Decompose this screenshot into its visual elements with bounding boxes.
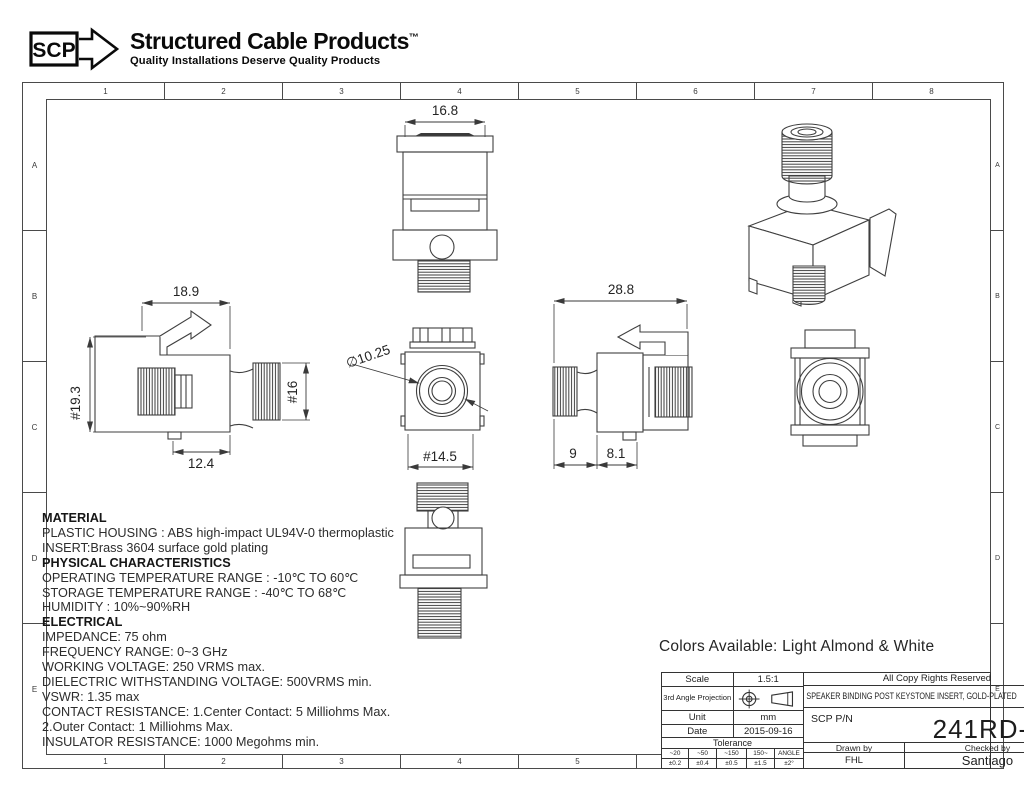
spec-line: DIELECTRIC WITHSTANDING VOLTAGE: 500VRMS… — [42, 675, 412, 690]
dim-face-width: #14.5 — [423, 449, 457, 464]
dim-barrel-len: 9 — [569, 446, 577, 461]
grid-col-label: 5 — [518, 755, 636, 768]
spec-line: HUMIDITY : 10%~90%RH — [42, 600, 412, 615]
grid-col-label: 4 — [400, 83, 518, 99]
grid-row-label: B — [23, 230, 46, 361]
date-value: 2015-09-16 — [733, 725, 804, 737]
product-title: SPEAKER BINDING POST KEYSTONE INSERT, GO… — [804, 691, 1017, 701]
tolerance-value: ±0.2 — [662, 759, 688, 768]
grid-col-label: 8 — [872, 83, 990, 99]
tolerance-range: 150~ — [746, 749, 774, 758]
spec-text-block: MATERIAL PLASTIC HOUSING : ABS high-impa… — [42, 511, 412, 750]
tolerance-value: ±2° — [774, 759, 803, 768]
scp-logo-mark: SCP — [28, 24, 122, 74]
logo-name: Structured Cable Products — [130, 28, 409, 54]
date-label: Date — [662, 725, 733, 737]
spec-line: OPERATING TEMPERATURE RANGE : -10℃ TO 60… — [42, 571, 412, 586]
scp-abbr: SCP — [32, 39, 75, 62]
grid-col-label: 4 — [400, 755, 518, 768]
grid-col-label: 1 — [47, 83, 164, 99]
grid-col-label: 2 — [164, 755, 282, 768]
scp-logo: SCP Structured Cable Products™ Quality I… — [28, 24, 418, 74]
spec-line: PHYSICAL CHARACTERISTICS — [42, 556, 412, 571]
view-isometric — [735, 118, 910, 308]
drawing-sheet: SCP Structured Cable Products™ Quality I… — [0, 0, 1024, 791]
checked-by-value: Santiago — [904, 753, 1024, 768]
grid-col-label: 1 — [47, 755, 164, 768]
drawn-by-value: FHL — [804, 753, 904, 768]
grid-row-label: B — [991, 230, 1004, 361]
title-block-left: Scale 1.5:1 3rd Angle Projection — [662, 673, 804, 768]
scale-label: Scale — [662, 673, 733, 686]
grid-col-label: 7 — [754, 83, 872, 99]
copyright-notice: All Copy Rights Reserved — [804, 673, 1024, 686]
spec-line: STORAGE TEMPERATURE RANGE : -40℃ TO 68℃ — [42, 586, 412, 601]
tolerance-range: ~50 — [688, 749, 716, 758]
unit-label: Unit — [662, 711, 733, 724]
view-side-left: 18.9 #19.3 #16 12.4 — [50, 285, 315, 480]
view-side-right: 28.8 9 8.1 — [545, 280, 720, 480]
title-block: Scale 1.5:1 3rd Angle Projection — [661, 672, 991, 769]
view-rear — [775, 318, 895, 448]
spec-line: WORKING VOLTAGE: 250 VRMS max. — [42, 660, 412, 675]
logo-trademark-symbol: ™ — [409, 33, 419, 44]
tolerance-value: ±0.4 — [688, 759, 716, 768]
spec-line: INSULATOR RESISTANCE: 1000 Megohms min. — [42, 735, 412, 750]
part-number-label: SCP P/N — [811, 713, 853, 725]
view-top: 16.8 — [385, 100, 510, 295]
drawn-by-label: Drawn by — [804, 743, 904, 752]
unit-value: mm — [733, 711, 804, 724]
tolerance-range: ~150 — [716, 749, 746, 758]
grid-row-label: C — [991, 361, 1004, 492]
tolerance-value: ±0.5 — [716, 759, 746, 768]
scale-value: 1.5:1 — [733, 673, 804, 686]
spec-line: CONTACT RESISTANCE: 1.Center Contact: 5 … — [42, 705, 412, 720]
dim-barrel-dia: #16 — [285, 381, 300, 404]
spec-line: PLASTIC HOUSING : ABS high-impact UL94V-… — [42, 526, 412, 541]
spec-line: VSWR: 1.35 max — [42, 690, 412, 705]
spec-line: IMPEDANCE: 75 ohm — [42, 630, 412, 645]
tolerance-value: ±1.5 — [746, 759, 774, 768]
dim-overall-depth: 28.8 — [608, 282, 634, 297]
logo-text: Structured Cable Products™ Quality Insta… — [130, 30, 418, 67]
grid-col-label: 2 — [164, 83, 282, 99]
dim-rear-len: 8.1 — [607, 446, 626, 461]
grid-ruler-top: 1 2 3 4 5 6 7 8 — [47, 83, 990, 99]
colors-available-note: Colors Available: Light Almond & White — [659, 638, 934, 656]
projection-label: 3rd Angle Projection — [662, 687, 733, 710]
grid-col-label: 5 — [518, 83, 636, 99]
grid-col-label: 3 — [282, 755, 400, 768]
dim-top-width: 16.8 — [432, 103, 458, 118]
spec-line: ELECTRICAL — [42, 615, 412, 630]
spec-line: MATERIAL — [42, 511, 412, 526]
view-front: ∅10.25 #14.5 — [340, 320, 515, 475]
spec-line: 2.Outer Contact: 1 Milliohms Max. — [42, 720, 412, 735]
scp-box-arrow-icon: SCP — [28, 24, 122, 74]
logo-tagline: Quality Installations Deserve Quality Pr… — [130, 56, 418, 67]
tolerance-range: ANGLE — [774, 749, 803, 758]
grid-col-label: 6 — [636, 83, 754, 99]
title-block-right: All Copy Rights Reserved SPEAKER BINDING… — [804, 673, 1024, 768]
grid-row-label: C — [23, 361, 46, 492]
grid-col-label: 3 — [282, 83, 400, 99]
dim-side-width: 18.9 — [173, 285, 199, 299]
dim-side-depth: 12.4 — [188, 456, 215, 471]
projection-symbol-cell — [733, 687, 804, 710]
spec-line: FREQUENCY RANGE: 0~3 GHz — [42, 645, 412, 660]
tolerance-label: Tolerance — [662, 738, 803, 748]
tolerance-range: ~20 — [662, 749, 688, 758]
dim-side-height: #19.3 — [68, 386, 83, 420]
part-number-value: 241RD-XX — [933, 714, 1024, 745]
part-number-cell: SCP P/N 241RD-XX — [804, 708, 1024, 743]
grid-row-label: D — [991, 492, 1004, 623]
grid-row-label: A — [991, 100, 1004, 230]
grid-ruler-right: A B C D E — [991, 100, 1004, 754]
dim-bore-dia: ∅10.25 — [344, 342, 392, 371]
spec-line: INSERT:Brass 3604 surface gold plating — [42, 541, 412, 556]
grid-row-label: A — [23, 100, 46, 230]
third-angle-projection-icon — [736, 688, 800, 710]
